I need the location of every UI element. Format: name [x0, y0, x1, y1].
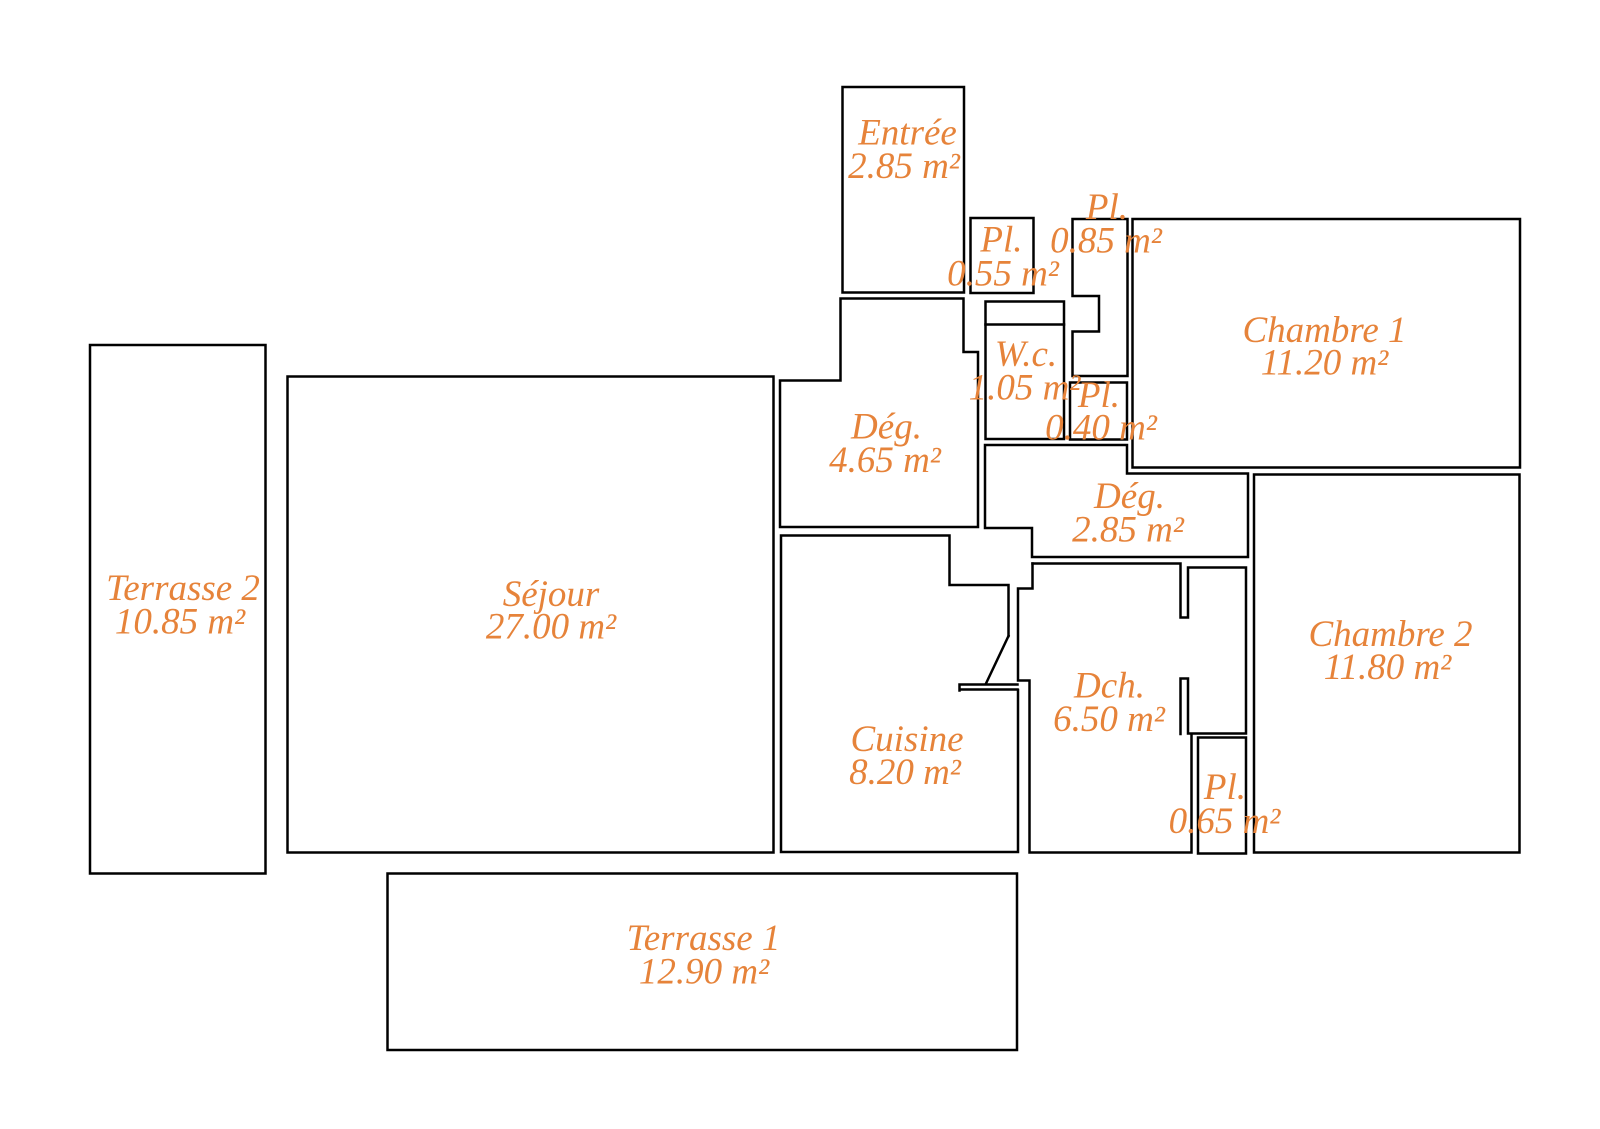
svg-text:0.85 m²: 0.85 m² — [1050, 221, 1163, 262]
svg-text:10.85 m²: 10.85 m² — [115, 602, 246, 643]
svg-text:0.55 m²: 0.55 m² — [947, 254, 1060, 295]
svg-text:4.65 m²: 4.65 m² — [829, 440, 942, 481]
svg-text:2.85 m²: 2.85 m² — [848, 146, 961, 187]
svg-text:0.40 m²: 0.40 m² — [1045, 408, 1158, 449]
svg-text:8.20 m²: 8.20 m² — [849, 752, 962, 793]
svg-text:2.85 m²: 2.85 m² — [1072, 510, 1185, 551]
svg-text:11.20 m²: 11.20 m² — [1261, 343, 1389, 384]
svg-text:6.50 m²: 6.50 m² — [1053, 699, 1166, 740]
svg-text:1.05 m²: 1.05 m² — [969, 368, 1082, 409]
svg-text:12.90 m²: 12.90 m² — [639, 952, 770, 993]
svg-text:11.80 m²: 11.80 m² — [1324, 647, 1452, 688]
svg-text:0.65 m²: 0.65 m² — [1169, 801, 1282, 842]
svg-text:27.00 m²: 27.00 m² — [486, 607, 617, 648]
